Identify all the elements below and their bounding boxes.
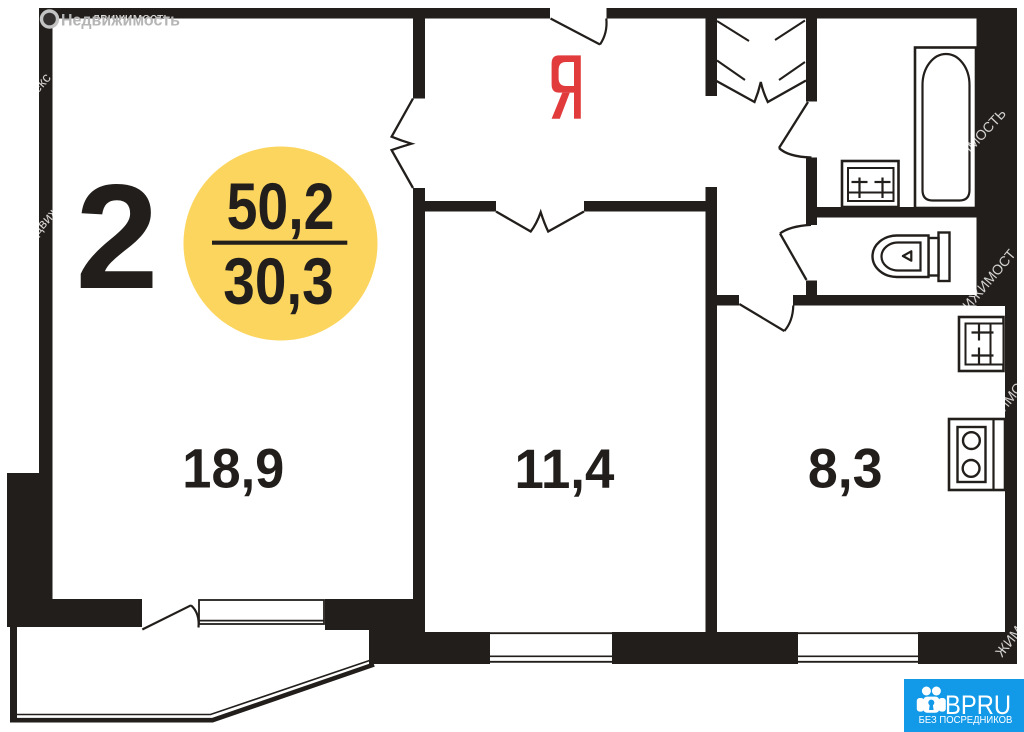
svg-text:50,2: 50,2 (227, 169, 335, 243)
svg-text:2: 2 (76, 153, 159, 320)
svg-text:8,3: 8,3 (808, 436, 883, 499)
svg-text:БЕЗ ПОСРЕДНИКОВ: БЕЗ ПОСРЕДНИКОВ (919, 715, 1013, 726)
svg-text:Недвижимость: Недвижимость (61, 11, 180, 30)
svg-text:18,9: 18,9 (182, 438, 284, 500)
svg-text:30,3: 30,3 (223, 245, 333, 319)
svg-text:11,4: 11,4 (514, 438, 614, 501)
